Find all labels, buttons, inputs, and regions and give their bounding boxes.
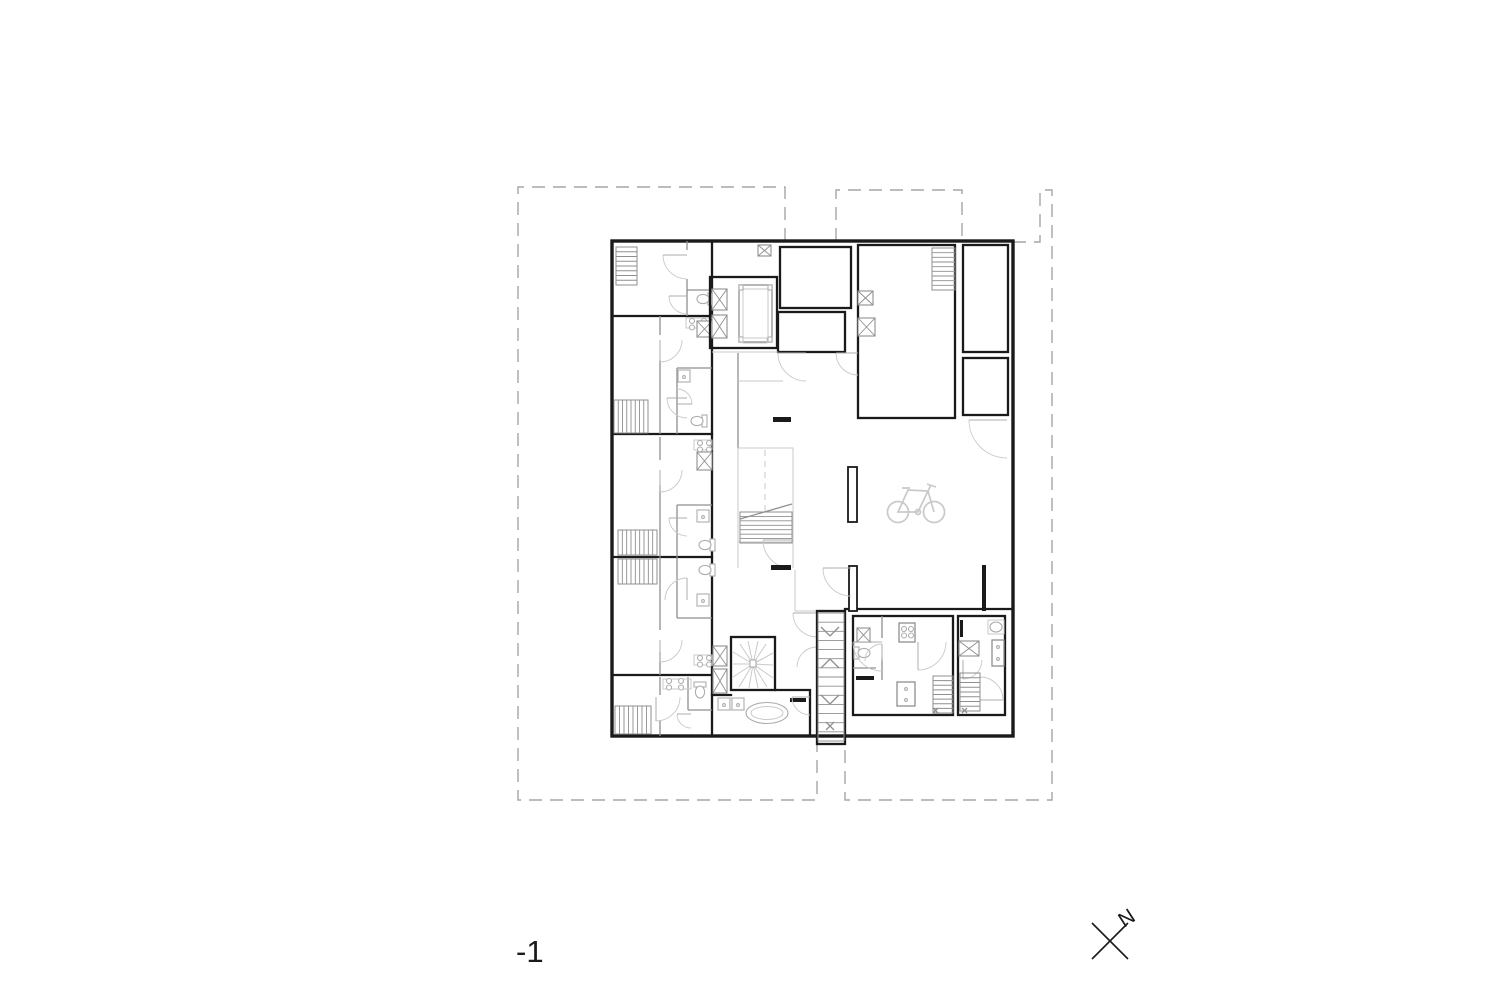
partition-wall-3 xyxy=(982,565,986,611)
toilet-unit-3 xyxy=(699,539,715,551)
floor-label: -1 xyxy=(516,934,544,969)
bathtub xyxy=(746,703,788,724)
building xyxy=(612,241,1013,744)
sink-unit-2 xyxy=(678,370,690,382)
shaft-unit-5 xyxy=(713,669,727,693)
shaft-room-a xyxy=(857,628,870,642)
toilet-unit-2 xyxy=(691,415,707,427)
elevator-shaft-vent-1 xyxy=(712,289,727,310)
door-leaf-corridor xyxy=(773,417,791,422)
door-leaf-main-stair xyxy=(771,565,791,570)
north-arrow: N xyxy=(1092,905,1139,959)
shaft-room-b xyxy=(959,641,979,656)
elevator-shaft-vent-2 xyxy=(712,315,727,338)
partition-wall-2 xyxy=(849,566,857,611)
sink-unit-4 xyxy=(697,594,709,606)
floor-plan-drawing: -1 N xyxy=(0,0,1500,1000)
toilet-unit-4 xyxy=(699,564,715,576)
sink-room-b xyxy=(990,622,1002,632)
door-leaf-room-a xyxy=(856,676,874,680)
sink-unit-3 xyxy=(697,510,709,522)
north-label: N xyxy=(1114,905,1139,933)
shaft-top-wall xyxy=(758,245,771,256)
shaft-top-right-2 xyxy=(858,318,875,336)
sink-bath-1 xyxy=(718,698,730,710)
shaft-unit-3 xyxy=(697,452,712,470)
toilet-room-a xyxy=(854,647,870,659)
shaft-unit-4 xyxy=(713,646,727,666)
sink-bath-2 xyxy=(732,698,744,710)
partition-wall-1 xyxy=(848,467,857,522)
shaft-top-right-1 xyxy=(858,291,873,305)
north-arrow-cross xyxy=(1092,923,1128,959)
site-boundary-top-middle xyxy=(836,190,962,241)
toilet-unit-5 xyxy=(694,682,706,698)
